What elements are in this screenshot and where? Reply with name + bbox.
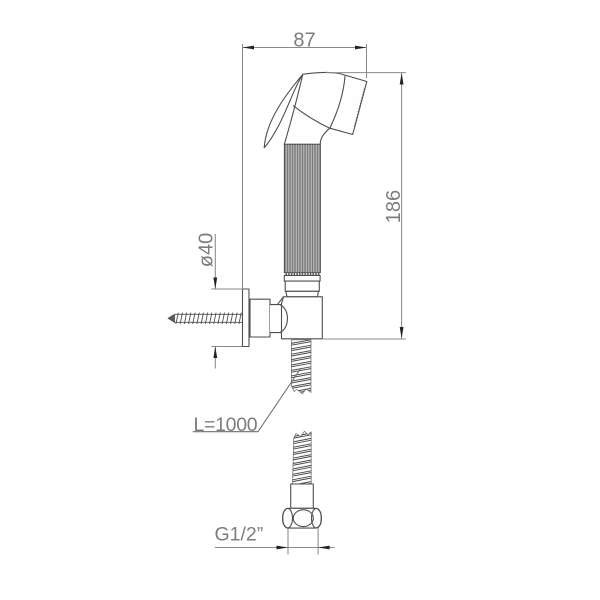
svg-text:L=1000: L=1000 — [194, 414, 258, 436]
svg-text:87: 87 — [293, 29, 315, 51]
svg-text:G1/2”: G1/2” — [215, 524, 264, 546]
svg-text:186: 186 — [383, 190, 405, 223]
svg-text:ø40: ø40 — [196, 233, 218, 267]
